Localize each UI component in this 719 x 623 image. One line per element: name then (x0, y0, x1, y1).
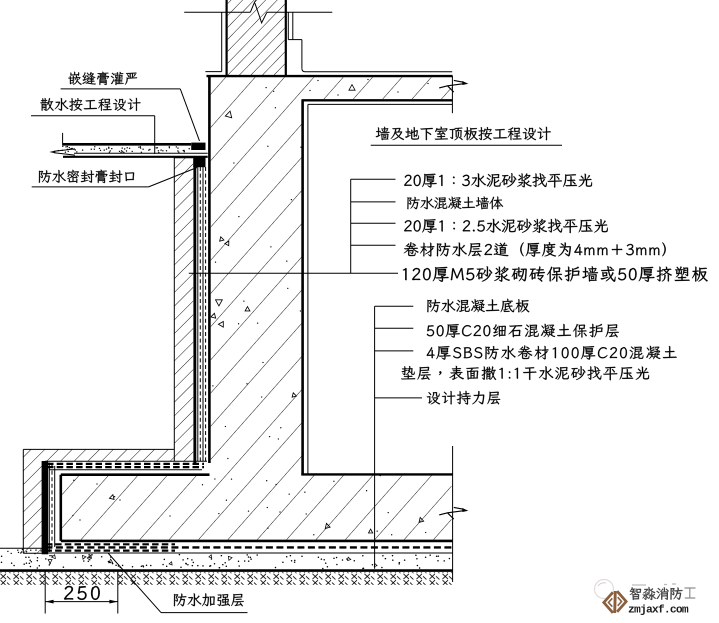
svg-text:zmjaxf.com: zmjaxf.com (628, 604, 689, 616)
